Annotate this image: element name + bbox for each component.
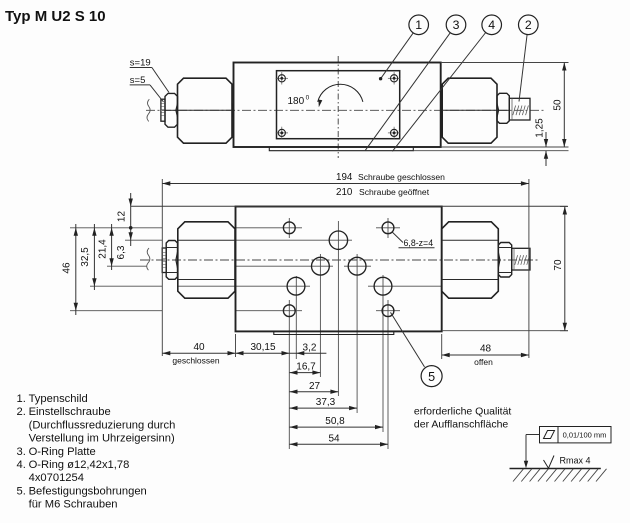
- svg-text:70: 70: [553, 259, 564, 271]
- svg-text:erforderliche Qualität: erforderliche Qualität: [414, 406, 512, 418]
- svg-text:180: 180: [288, 96, 305, 107]
- svg-text:37,3: 37,3: [316, 397, 336, 408]
- svg-text:1: 1: [415, 18, 422, 32]
- svg-text:46: 46: [62, 262, 73, 274]
- svg-text:16,7: 16,7: [296, 362, 316, 373]
- svg-text:4: 4: [488, 18, 495, 32]
- svg-text:Typ M U2 S 10: Typ M U2 S 10: [5, 8, 106, 25]
- svg-text:Typenschild: Typenschild: [29, 393, 88, 405]
- svg-text:6,3: 6,3: [116, 245, 127, 259]
- svg-text:50: 50: [553, 99, 564, 111]
- svg-text:12: 12: [117, 211, 128, 223]
- svg-text:3.: 3.: [17, 446, 26, 458]
- svg-text:5: 5: [428, 370, 435, 384]
- svg-text:Rmax 4: Rmax 4: [560, 456, 591, 466]
- svg-text:s=5: s=5: [130, 75, 146, 86]
- svg-text:50,8: 50,8: [325, 416, 345, 427]
- svg-text:geschlossen: geschlossen: [172, 356, 220, 366]
- svg-text:21,4: 21,4: [98, 239, 109, 259]
- svg-text:0,01/100 mm: 0,01/100 mm: [563, 431, 607, 440]
- svg-text:32,5: 32,5: [80, 247, 91, 267]
- svg-text:offen: offen: [474, 357, 493, 367]
- svg-text:Schraube geschlossen: Schraube geschlossen: [358, 172, 445, 182]
- svg-text:O-Ring Platte: O-Ring Platte: [29, 446, 96, 458]
- svg-text:194: 194: [336, 172, 353, 183]
- svg-text:0: 0: [306, 95, 310, 102]
- svg-text:für M6 Schrauben: für M6 Schrauben: [29, 499, 118, 511]
- svg-text:4x0701254: 4x0701254: [29, 472, 84, 484]
- svg-text:2: 2: [525, 18, 532, 32]
- svg-text:54: 54: [328, 434, 340, 445]
- svg-text:3: 3: [453, 18, 460, 32]
- svg-text:s=19: s=19: [130, 58, 151, 69]
- svg-text:1.: 1.: [17, 393, 26, 405]
- svg-text:Einstellschraube: Einstellschraube: [29, 406, 111, 418]
- svg-text:5.: 5.: [17, 485, 26, 497]
- svg-text:(Durchflussreduzierung durch: (Durchflussreduzierung durch: [29, 419, 176, 431]
- svg-text:Schraube geöffnet: Schraube geöffnet: [359, 187, 430, 197]
- svg-text:der Aufflanschfläche: der Aufflanschfläche: [414, 419, 509, 431]
- svg-text:1,25: 1,25: [535, 118, 546, 138]
- svg-text:48: 48: [480, 344, 492, 355]
- svg-text:Verstellung im Uhrzeigersinn): Verstellung im Uhrzeigersinn): [29, 433, 175, 445]
- svg-text:210: 210: [336, 187, 353, 198]
- svg-text:Befestigungsbohrungen: Befestigungsbohrungen: [29, 485, 147, 497]
- svg-text:30,15: 30,15: [250, 342, 275, 353]
- svg-text:2.: 2.: [17, 406, 26, 418]
- svg-text:O-Ring ø12,42x1,78: O-Ring ø12,42x1,78: [29, 459, 130, 471]
- svg-text:3,2: 3,2: [303, 342, 317, 353]
- svg-text:4.: 4.: [17, 459, 26, 471]
- svg-text:40: 40: [193, 342, 205, 353]
- svg-text:6,8-z=4: 6,8-z=4: [404, 238, 434, 248]
- svg-text:27: 27: [309, 381, 321, 392]
